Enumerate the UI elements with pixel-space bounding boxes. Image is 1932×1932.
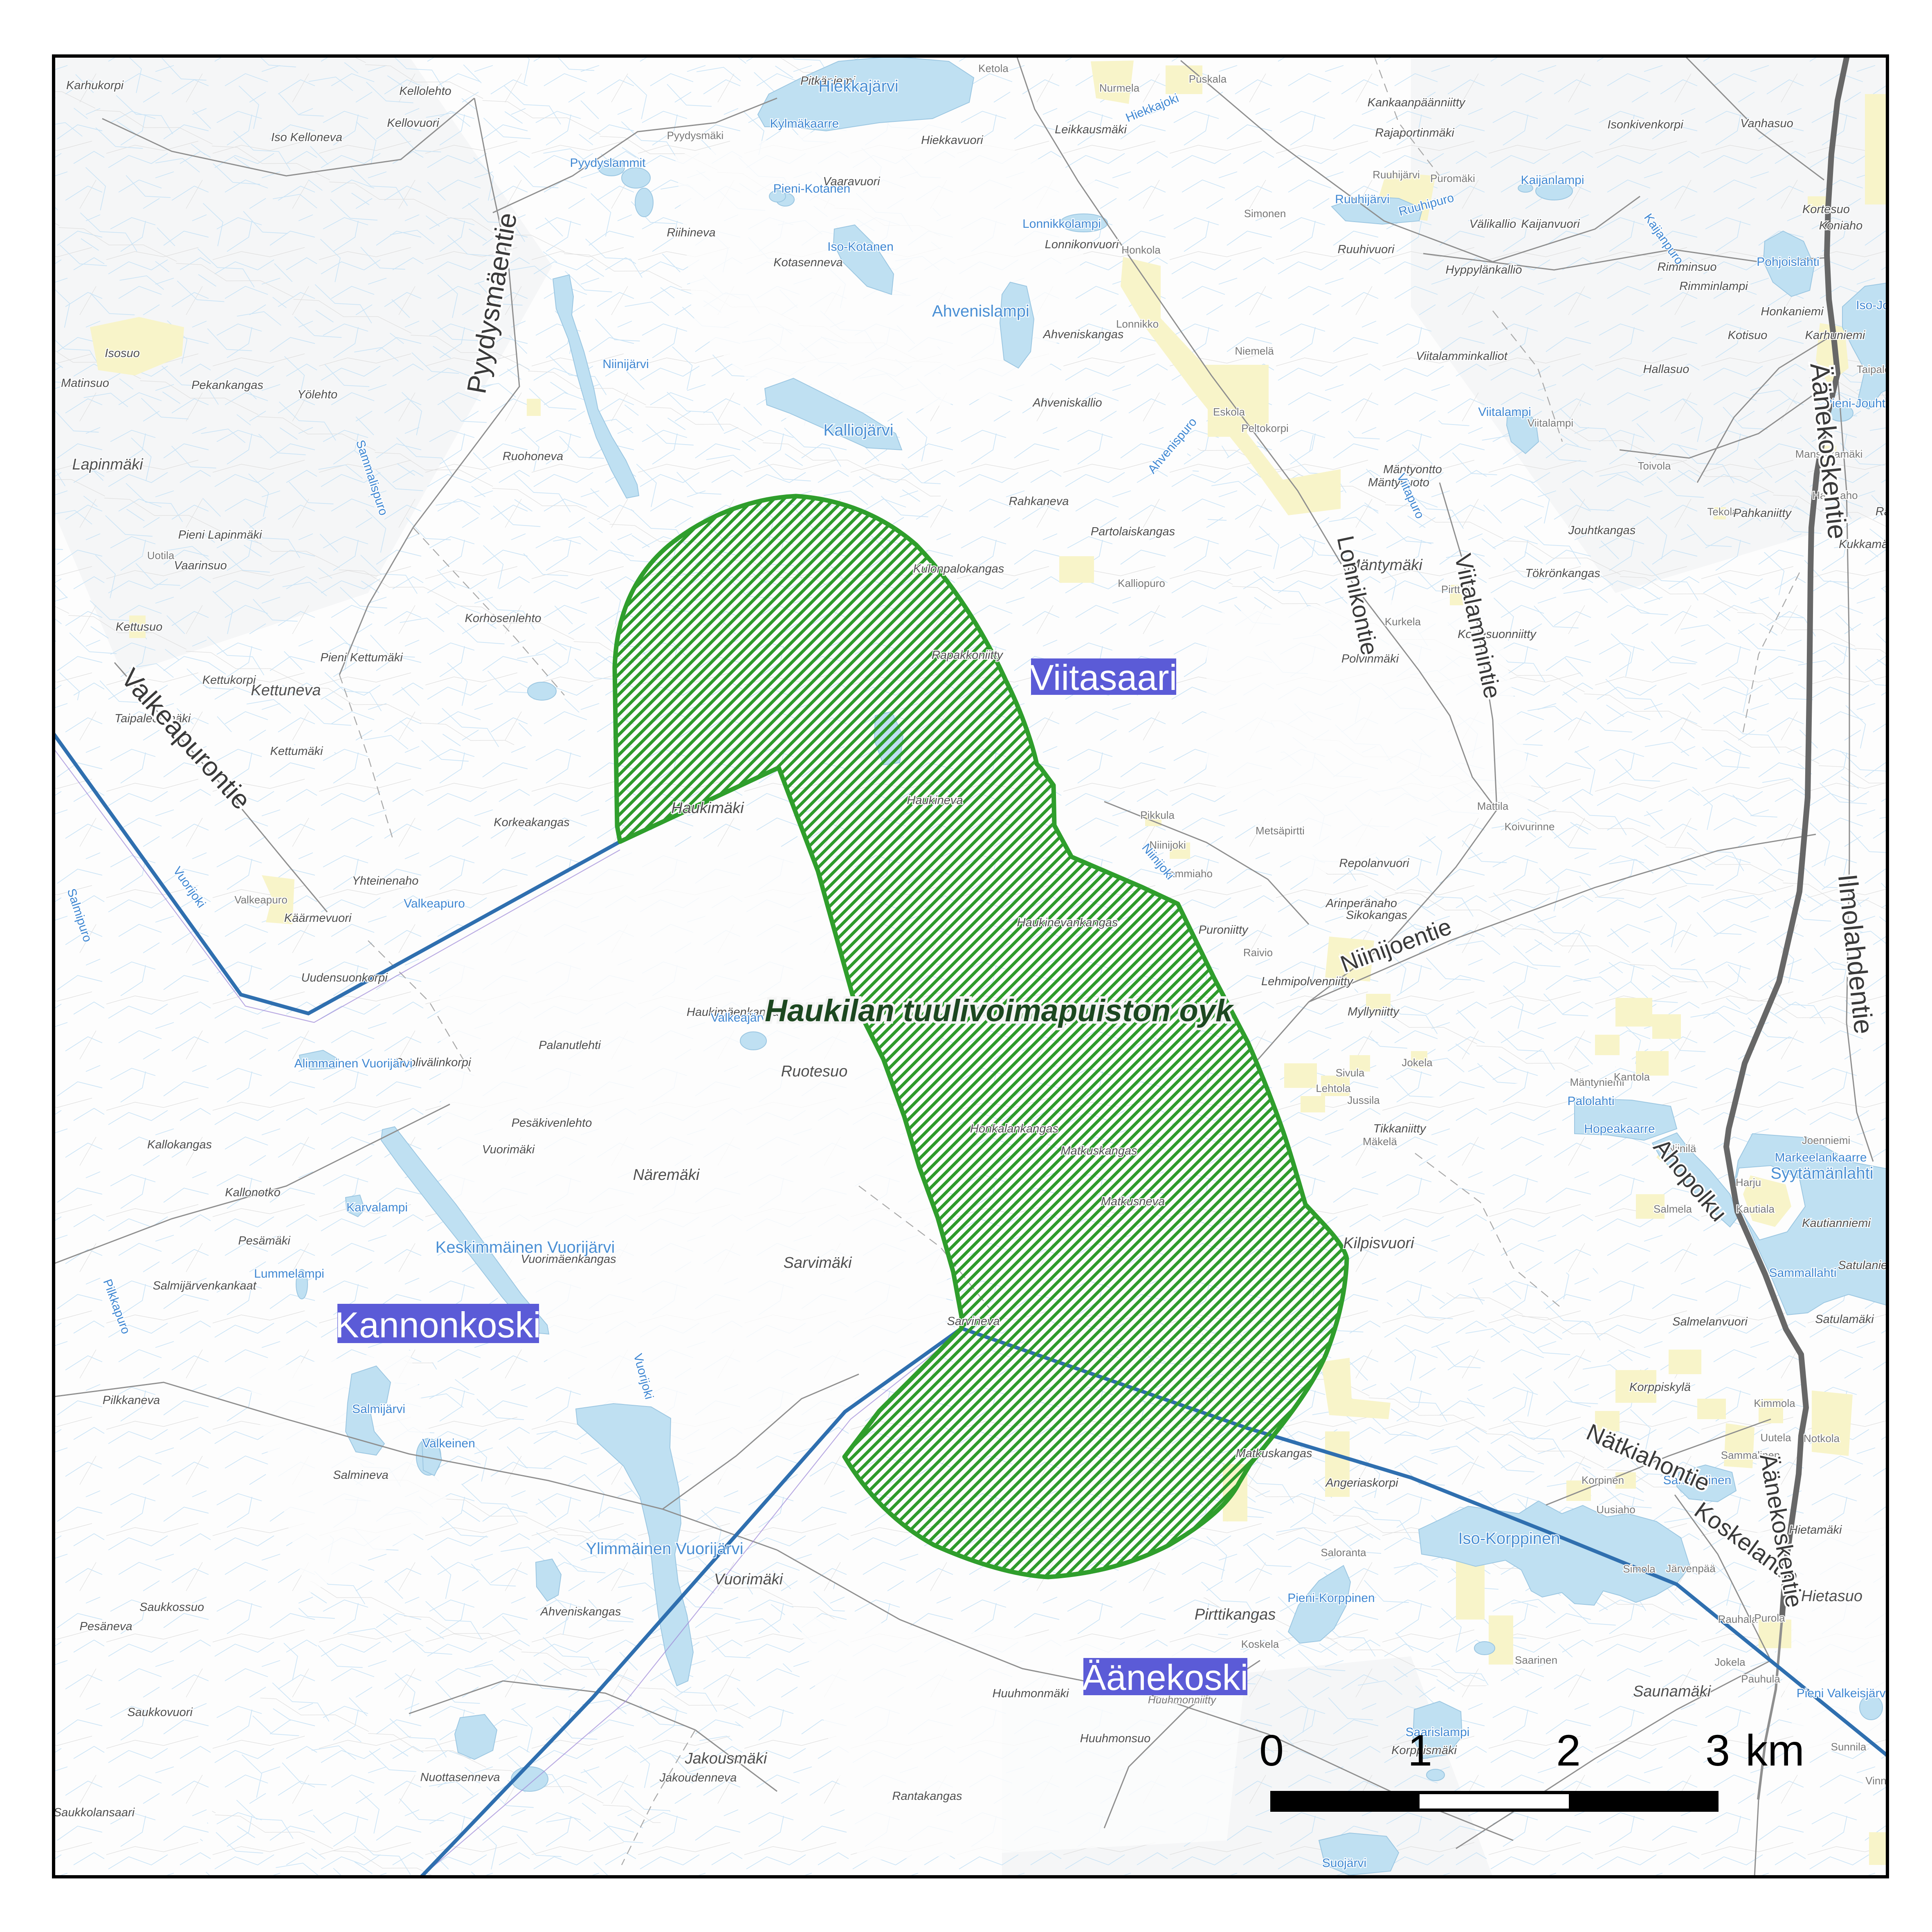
svg-text:Isonkivenkorpi: Isonkivenkorpi bbox=[1607, 118, 1684, 131]
svg-text:Sunnila: Sunnila bbox=[1831, 1741, 1867, 1753]
svg-text:Vanhasuo: Vanhasuo bbox=[1740, 117, 1793, 130]
svg-text:Pesämäki: Pesämäki bbox=[238, 1234, 291, 1247]
svg-text:Ruuhivuori: Ruuhivuori bbox=[1338, 243, 1395, 256]
svg-text:Viitasaari: Viitasaari bbox=[1030, 657, 1177, 698]
svg-text:Koivurinne: Koivurinne bbox=[1505, 820, 1555, 833]
svg-text:Huuhmonsuo: Huuhmonsuo bbox=[1080, 1732, 1151, 1745]
svg-text:Korkeakangas: Korkeakangas bbox=[494, 816, 569, 829]
svg-text:Lonnikkolampi: Lonnikkolampi bbox=[1022, 217, 1101, 231]
svg-text:Purola: Purola bbox=[1754, 1612, 1785, 1624]
svg-text:Rantakangas: Rantakangas bbox=[892, 1790, 962, 1803]
svg-text:Jussila: Jussila bbox=[1347, 1094, 1380, 1106]
svg-text:Pikkula: Pikkula bbox=[1140, 809, 1175, 821]
svg-text:Kautianniemi: Kautianniemi bbox=[1802, 1217, 1871, 1230]
svg-text:Kautiala: Kautiala bbox=[1736, 1203, 1775, 1215]
svg-text:Salmela: Salmela bbox=[1653, 1203, 1692, 1215]
svg-text:Puskala: Puskala bbox=[1189, 73, 1227, 85]
svg-text:Valkeapuro: Valkeapuro bbox=[404, 897, 465, 910]
svg-text:Salmijärvenkankaat: Salmijärvenkankaat bbox=[153, 1279, 257, 1292]
svg-text:Rimminlampi: Rimminlampi bbox=[1679, 280, 1748, 293]
svg-text:Hopeakaarre: Hopeakaarre bbox=[1584, 1122, 1655, 1136]
svg-text:Kantola: Kantola bbox=[1614, 1071, 1650, 1083]
svg-text:Pekankangas: Pekankangas bbox=[191, 379, 263, 392]
svg-text:Ruuhijärvi: Ruuhijärvi bbox=[1373, 168, 1420, 181]
svg-text:Yölehto: Yölehto bbox=[297, 388, 337, 401]
svg-text:Pieni Lapinmäki: Pieni Lapinmäki bbox=[178, 528, 263, 541]
svg-text:Niinijärvi: Niinijärvi bbox=[602, 357, 649, 371]
svg-text:Hyppylänkallio: Hyppylänkallio bbox=[1446, 263, 1522, 276]
svg-text:Nuottasenneva: Nuottasenneva bbox=[420, 1771, 500, 1784]
svg-text:Korhosenlehto: Korhosenlehto bbox=[465, 612, 541, 625]
svg-text:Suojärvi: Suojärvi bbox=[1322, 1856, 1366, 1870]
svg-text:Uutela: Uutela bbox=[1760, 1431, 1791, 1444]
svg-text:Harju: Harju bbox=[1736, 1176, 1761, 1188]
svg-text:Uotila: Uotila bbox=[147, 549, 175, 562]
svg-text:Mäntyontto: Mäntyontto bbox=[1383, 463, 1442, 476]
svg-text:Matkuskangas: Matkuskangas bbox=[1236, 1447, 1312, 1460]
svg-text:Angeriaskorpi: Angeriaskorpi bbox=[1325, 1476, 1399, 1489]
svg-text:Lehtola: Lehtola bbox=[1316, 1082, 1351, 1094]
svg-text:Pesäneva: Pesäneva bbox=[80, 1620, 133, 1633]
svg-text:Pohjoislahti: Pohjoislahti bbox=[1757, 255, 1819, 269]
svg-text:Mattila: Mattila bbox=[1477, 800, 1509, 812]
svg-text:Saukkovuori: Saukkovuori bbox=[127, 1706, 193, 1719]
svg-text:Mäkelä: Mäkelä bbox=[1363, 1135, 1397, 1148]
svg-text:Kallokangas: Kallokangas bbox=[147, 1138, 212, 1151]
svg-text:Iso Kelloneva: Iso Kelloneva bbox=[271, 131, 342, 144]
svg-text:Kaijanlampi: Kaijanlampi bbox=[1521, 173, 1584, 187]
svg-text:Saarinen: Saarinen bbox=[1515, 1654, 1557, 1666]
svg-text:Hiekkajärvi: Hiekkajärvi bbox=[818, 77, 899, 95]
svg-text:Viitalampi: Viitalampi bbox=[1528, 417, 1573, 429]
svg-text:2: 2 bbox=[1556, 1725, 1581, 1775]
svg-text:Valkeajärvi: Valkeajärvi bbox=[711, 1011, 770, 1024]
svg-text:Hallasuo: Hallasuo bbox=[1643, 363, 1689, 376]
svg-text:Saukkossuo: Saukkossuo bbox=[139, 1601, 204, 1614]
svg-text:Peltokorpi: Peltokorpi bbox=[1241, 422, 1289, 434]
svg-text:Nurmela: Nurmela bbox=[1099, 82, 1140, 94]
svg-text:Karvalampi: Karvalampi bbox=[346, 1201, 408, 1214]
svg-text:Rajaportinmäki: Rajaportinmäki bbox=[1375, 126, 1455, 139]
svg-text:Koniaho: Koniaho bbox=[1819, 219, 1862, 232]
svg-text:Iso-Kotanen: Iso-Kotanen bbox=[827, 240, 894, 254]
svg-text:Leikkausmäki: Leikkausmäki bbox=[1055, 123, 1127, 136]
svg-text:Markeelankaarre: Markeelankaarre bbox=[1775, 1151, 1867, 1164]
svg-text:Äänekoski: Äänekoski bbox=[1082, 1657, 1248, 1698]
svg-text:Jakoudenneva: Jakoudenneva bbox=[659, 1771, 737, 1784]
svg-text:Syytämänlahti: Syytämänlahti bbox=[1770, 1164, 1873, 1182]
svg-text:Honkaniemi: Honkaniemi bbox=[1761, 305, 1824, 318]
svg-text:Kankaanpäänniitty: Kankaanpäänniitty bbox=[1368, 96, 1466, 109]
svg-text:Välikallio: Välikallio bbox=[1469, 218, 1516, 231]
svg-text:Ahveniskangas: Ahveniskangas bbox=[540, 1605, 621, 1618]
svg-text:Palanutlehti: Palanutlehti bbox=[539, 1039, 601, 1052]
svg-text:Salmineva: Salmineva bbox=[333, 1469, 388, 1482]
svg-text:Vuorimäki: Vuorimäki bbox=[714, 1571, 784, 1588]
svg-text:Notkola: Notkola bbox=[1804, 1432, 1840, 1445]
svg-text:Kalliojärvi: Kalliojärvi bbox=[823, 421, 893, 439]
svg-text:Hietasuo: Hietasuo bbox=[1801, 1588, 1862, 1605]
svg-text:Hiekkavuori: Hiekkavuori bbox=[921, 134, 984, 147]
svg-text:Uudensuonkorpi: Uudensuonkorpi bbox=[301, 971, 388, 984]
svg-text:Sikokangas: Sikokangas bbox=[1346, 909, 1407, 922]
svg-text:Pyydyslammit: Pyydyslammit bbox=[570, 156, 646, 170]
svg-text:Valkeapuro: Valkeapuro bbox=[234, 894, 288, 906]
svg-text:Rauhala: Rauhala bbox=[1718, 1613, 1758, 1625]
svg-text:Kaijanvuori: Kaijanvuori bbox=[1521, 218, 1580, 231]
svg-text:Kellovuori: Kellovuori bbox=[387, 117, 440, 130]
svg-text:Tikkaniitty: Tikkaniitty bbox=[1373, 1122, 1427, 1135]
svg-text:Kettukorpi: Kettukorpi bbox=[202, 674, 256, 687]
svg-text:Simola: Simola bbox=[1623, 1563, 1656, 1575]
svg-text:Ruotesuo: Ruotesuo bbox=[781, 1063, 848, 1080]
svg-text:Sarvineva: Sarvineva bbox=[947, 1315, 1000, 1328]
svg-text:Salmijärvi: Salmijärvi bbox=[352, 1402, 405, 1416]
svg-text:Vaarinsuo: Vaarinsuo bbox=[174, 559, 227, 572]
svg-text:Hietamäki: Hietamäki bbox=[1789, 1523, 1842, 1537]
svg-text:Korppiskylä: Korppiskylä bbox=[1629, 1381, 1691, 1394]
svg-text:Pieni-Kotanen: Pieni-Kotanen bbox=[773, 182, 850, 195]
svg-text:Toivola: Toivola bbox=[1638, 460, 1671, 472]
svg-text:Metsäpirtti: Metsäpirtti bbox=[1256, 824, 1305, 837]
svg-text:Koskela: Koskela bbox=[1241, 1638, 1279, 1650]
svg-text:km: km bbox=[1746, 1725, 1804, 1775]
svg-text:Pesäkivenlehto: Pesäkivenlehto bbox=[512, 1117, 592, 1130]
svg-text:Riihineva: Riihineva bbox=[667, 226, 715, 239]
svg-text:Kurkela: Kurkela bbox=[1385, 616, 1421, 628]
svg-text:Näremäki: Näremäki bbox=[633, 1166, 700, 1184]
svg-text:Viitalamminkalliot: Viitalamminkalliot bbox=[1416, 350, 1508, 363]
svg-text:Saunamäki: Saunamäki bbox=[1633, 1683, 1712, 1700]
svg-text:Kimmola: Kimmola bbox=[1754, 1397, 1795, 1409]
svg-text:Jokela: Jokela bbox=[1714, 1656, 1746, 1668]
svg-text:Kalliopuro: Kalliopuro bbox=[1118, 577, 1165, 589]
svg-text:Saukkolansaari: Saukkolansaari bbox=[54, 1806, 135, 1819]
svg-text:Matinsuo: Matinsuo bbox=[61, 377, 109, 390]
svg-text:Kettusuo: Kettusuo bbox=[116, 620, 162, 634]
svg-text:1: 1 bbox=[1408, 1725, 1432, 1775]
svg-text:Yhteinenaho: Yhteinenaho bbox=[352, 874, 419, 887]
svg-text:Korpinen: Korpinen bbox=[1582, 1474, 1624, 1486]
svg-text:3: 3 bbox=[1705, 1725, 1730, 1775]
svg-text:Huuhmonmäki: Huuhmonmäki bbox=[993, 1687, 1070, 1700]
svg-text:Ahveniskallio: Ahveniskallio bbox=[1032, 396, 1102, 409]
svg-text:Palolahti: Palolahti bbox=[1567, 1094, 1614, 1108]
svg-text:Kettuneva: Kettuneva bbox=[251, 682, 321, 699]
svg-text:Lehmipolvenniitty: Lehmipolvenniitty bbox=[1261, 975, 1354, 988]
svg-text:Ruuhijärvi: Ruuhijärvi bbox=[1335, 193, 1389, 206]
svg-text:Tökrönkangas: Tökrönkangas bbox=[1525, 567, 1600, 580]
svg-text:Satulamäki: Satulamäki bbox=[1815, 1313, 1874, 1326]
svg-text:Myllyniitty: Myllyniitty bbox=[1348, 1005, 1400, 1018]
svg-text:Ylimmäinen Vuorijärvi: Ylimmäinen Vuorijärvi bbox=[586, 1540, 743, 1558]
svg-text:Kulonpalokangas: Kulonpalokangas bbox=[913, 562, 1004, 575]
svg-text:Sivula: Sivula bbox=[1336, 1067, 1365, 1079]
svg-text:Simonen: Simonen bbox=[1244, 207, 1286, 220]
svg-text:Salmelanvuori: Salmelanvuori bbox=[1672, 1315, 1748, 1328]
svg-text:Pyydysmäki: Pyydysmäki bbox=[667, 129, 724, 142]
svg-text:Haukineva: Haukineva bbox=[907, 794, 963, 807]
svg-text:Joenniemi: Joenniemi bbox=[1802, 1134, 1851, 1146]
svg-text:Puroniitty: Puroniitty bbox=[1199, 923, 1249, 937]
svg-text:Pilkkaneva: Pilkkaneva bbox=[103, 1394, 160, 1407]
svg-text:Kotisuo: Kotisuo bbox=[1728, 329, 1768, 342]
svg-text:Ahvenislampi: Ahvenislampi bbox=[932, 302, 1029, 320]
svg-text:Ketola: Ketola bbox=[978, 62, 1009, 74]
svg-text:Alimmainen Vuorijärvi: Alimmainen Vuorijärvi bbox=[294, 1057, 413, 1070]
svg-text:Puromäki: Puromäki bbox=[1430, 172, 1475, 184]
svg-text:Lonnikonvuori: Lonnikonvuori bbox=[1045, 238, 1119, 251]
svg-text:Haukimäki: Haukimäki bbox=[671, 800, 744, 817]
svg-text:Kilpisvuori: Kilpisvuori bbox=[1343, 1235, 1415, 1252]
svg-text:Sammallahti: Sammallahti bbox=[1769, 1266, 1836, 1280]
svg-text:Kylmäkaarre: Kylmäkaarre bbox=[770, 117, 839, 130]
svg-text:Arinperänaho: Arinperänaho bbox=[1325, 897, 1397, 910]
svg-text:Niemelä: Niemelä bbox=[1235, 345, 1274, 357]
svg-text:Saloranta: Saloranta bbox=[1321, 1546, 1366, 1559]
svg-text:Eskola: Eskola bbox=[1213, 406, 1245, 418]
svg-text:Ruohoneva: Ruohoneva bbox=[503, 450, 563, 463]
svg-text:Jokela: Jokela bbox=[1402, 1056, 1433, 1069]
svg-text:Keskimmäinen Vuorijärvi: Keskimmäinen Vuorijärvi bbox=[436, 1238, 615, 1256]
svg-text:Uusiaho: Uusiaho bbox=[1596, 1503, 1635, 1516]
svg-text:Pieni-Korppinen: Pieni-Korppinen bbox=[1287, 1591, 1375, 1605]
svg-text:Honkola: Honkola bbox=[1121, 244, 1161, 256]
svg-text:Ahveniskangas: Ahveniskangas bbox=[1042, 328, 1124, 341]
svg-text:0: 0 bbox=[1259, 1725, 1284, 1775]
svg-text:Kortesuo: Kortesuo bbox=[1802, 203, 1850, 216]
svg-text:Isosuo: Isosuo bbox=[105, 347, 139, 360]
svg-text:Iso-Korppinen: Iso-Korppinen bbox=[1458, 1530, 1560, 1548]
svg-text:Karhukorpi: Karhukorpi bbox=[66, 79, 124, 92]
svg-text:Repolanvuori: Repolanvuori bbox=[1339, 857, 1410, 870]
svg-text:Pauhula: Pauhula bbox=[1741, 1673, 1780, 1685]
svg-text:Haukinevankangas: Haukinevankangas bbox=[1017, 916, 1118, 929]
svg-text:Viitalampi: Viitalampi bbox=[1478, 405, 1531, 419]
svg-text:Valkeinen: Valkeinen bbox=[422, 1437, 475, 1450]
svg-text:Pirttikangas: Pirttikangas bbox=[1195, 1606, 1276, 1623]
svg-text:Jakousmäki: Jakousmäki bbox=[685, 1750, 768, 1767]
svg-text:Matkuskangas: Matkuskangas bbox=[1061, 1144, 1137, 1157]
svg-text:Haukilan tuulivoimapuiston oyk: Haukilan tuulivoimapuiston oyk bbox=[765, 993, 1234, 1028]
svg-text:Sarvimäki: Sarvimäki bbox=[784, 1254, 852, 1272]
svg-text:Kettumäki: Kettumäki bbox=[270, 745, 323, 758]
svg-text:Matkusneva: Matkusneva bbox=[1101, 1195, 1165, 1208]
svg-text:Jouhtkangas: Jouhtkangas bbox=[1568, 524, 1635, 537]
svg-text:Pieni Valkeisjärvi: Pieni Valkeisjärvi bbox=[1797, 1687, 1889, 1700]
svg-text:Lummelampi: Lummelampi bbox=[254, 1267, 324, 1281]
svg-text:Honkalankangas: Honkalankangas bbox=[970, 1122, 1058, 1135]
svg-text:Raivio: Raivio bbox=[1243, 946, 1273, 959]
svg-text:Vuorimäki: Vuorimäki bbox=[482, 1143, 535, 1156]
svg-text:Lapinmäki: Lapinmäki bbox=[72, 456, 144, 473]
svg-text:Rahkaneva: Rahkaneva bbox=[1009, 495, 1069, 508]
svg-text:Partolaiskangas: Partolaiskangas bbox=[1091, 525, 1175, 538]
svg-text:Karhuniemi: Karhuniemi bbox=[1805, 329, 1866, 342]
svg-text:Käärmevuori: Käärmevuori bbox=[284, 912, 352, 925]
svg-text:Taipale: Taipale bbox=[1857, 363, 1890, 375]
svg-text:Järvenpää: Järvenpää bbox=[1666, 1562, 1716, 1575]
svg-text:Kannonkoski: Kannonkoski bbox=[335, 1305, 541, 1345]
svg-text:Pahkaniitty: Pahkaniitty bbox=[1733, 507, 1792, 520]
svg-text:Rapakkoniitty: Rapakkoniitty bbox=[932, 649, 1004, 662]
svg-text:Pieni Kettumäki: Pieni Kettumäki bbox=[320, 651, 403, 664]
svg-text:Kellolehto: Kellolehto bbox=[399, 85, 451, 98]
svg-text:Kallonotko: Kallonotko bbox=[225, 1186, 280, 1199]
svg-text:Kotasenneva: Kotasenneva bbox=[773, 256, 842, 269]
svg-text:Rimminsuo: Rimminsuo bbox=[1657, 261, 1716, 274]
